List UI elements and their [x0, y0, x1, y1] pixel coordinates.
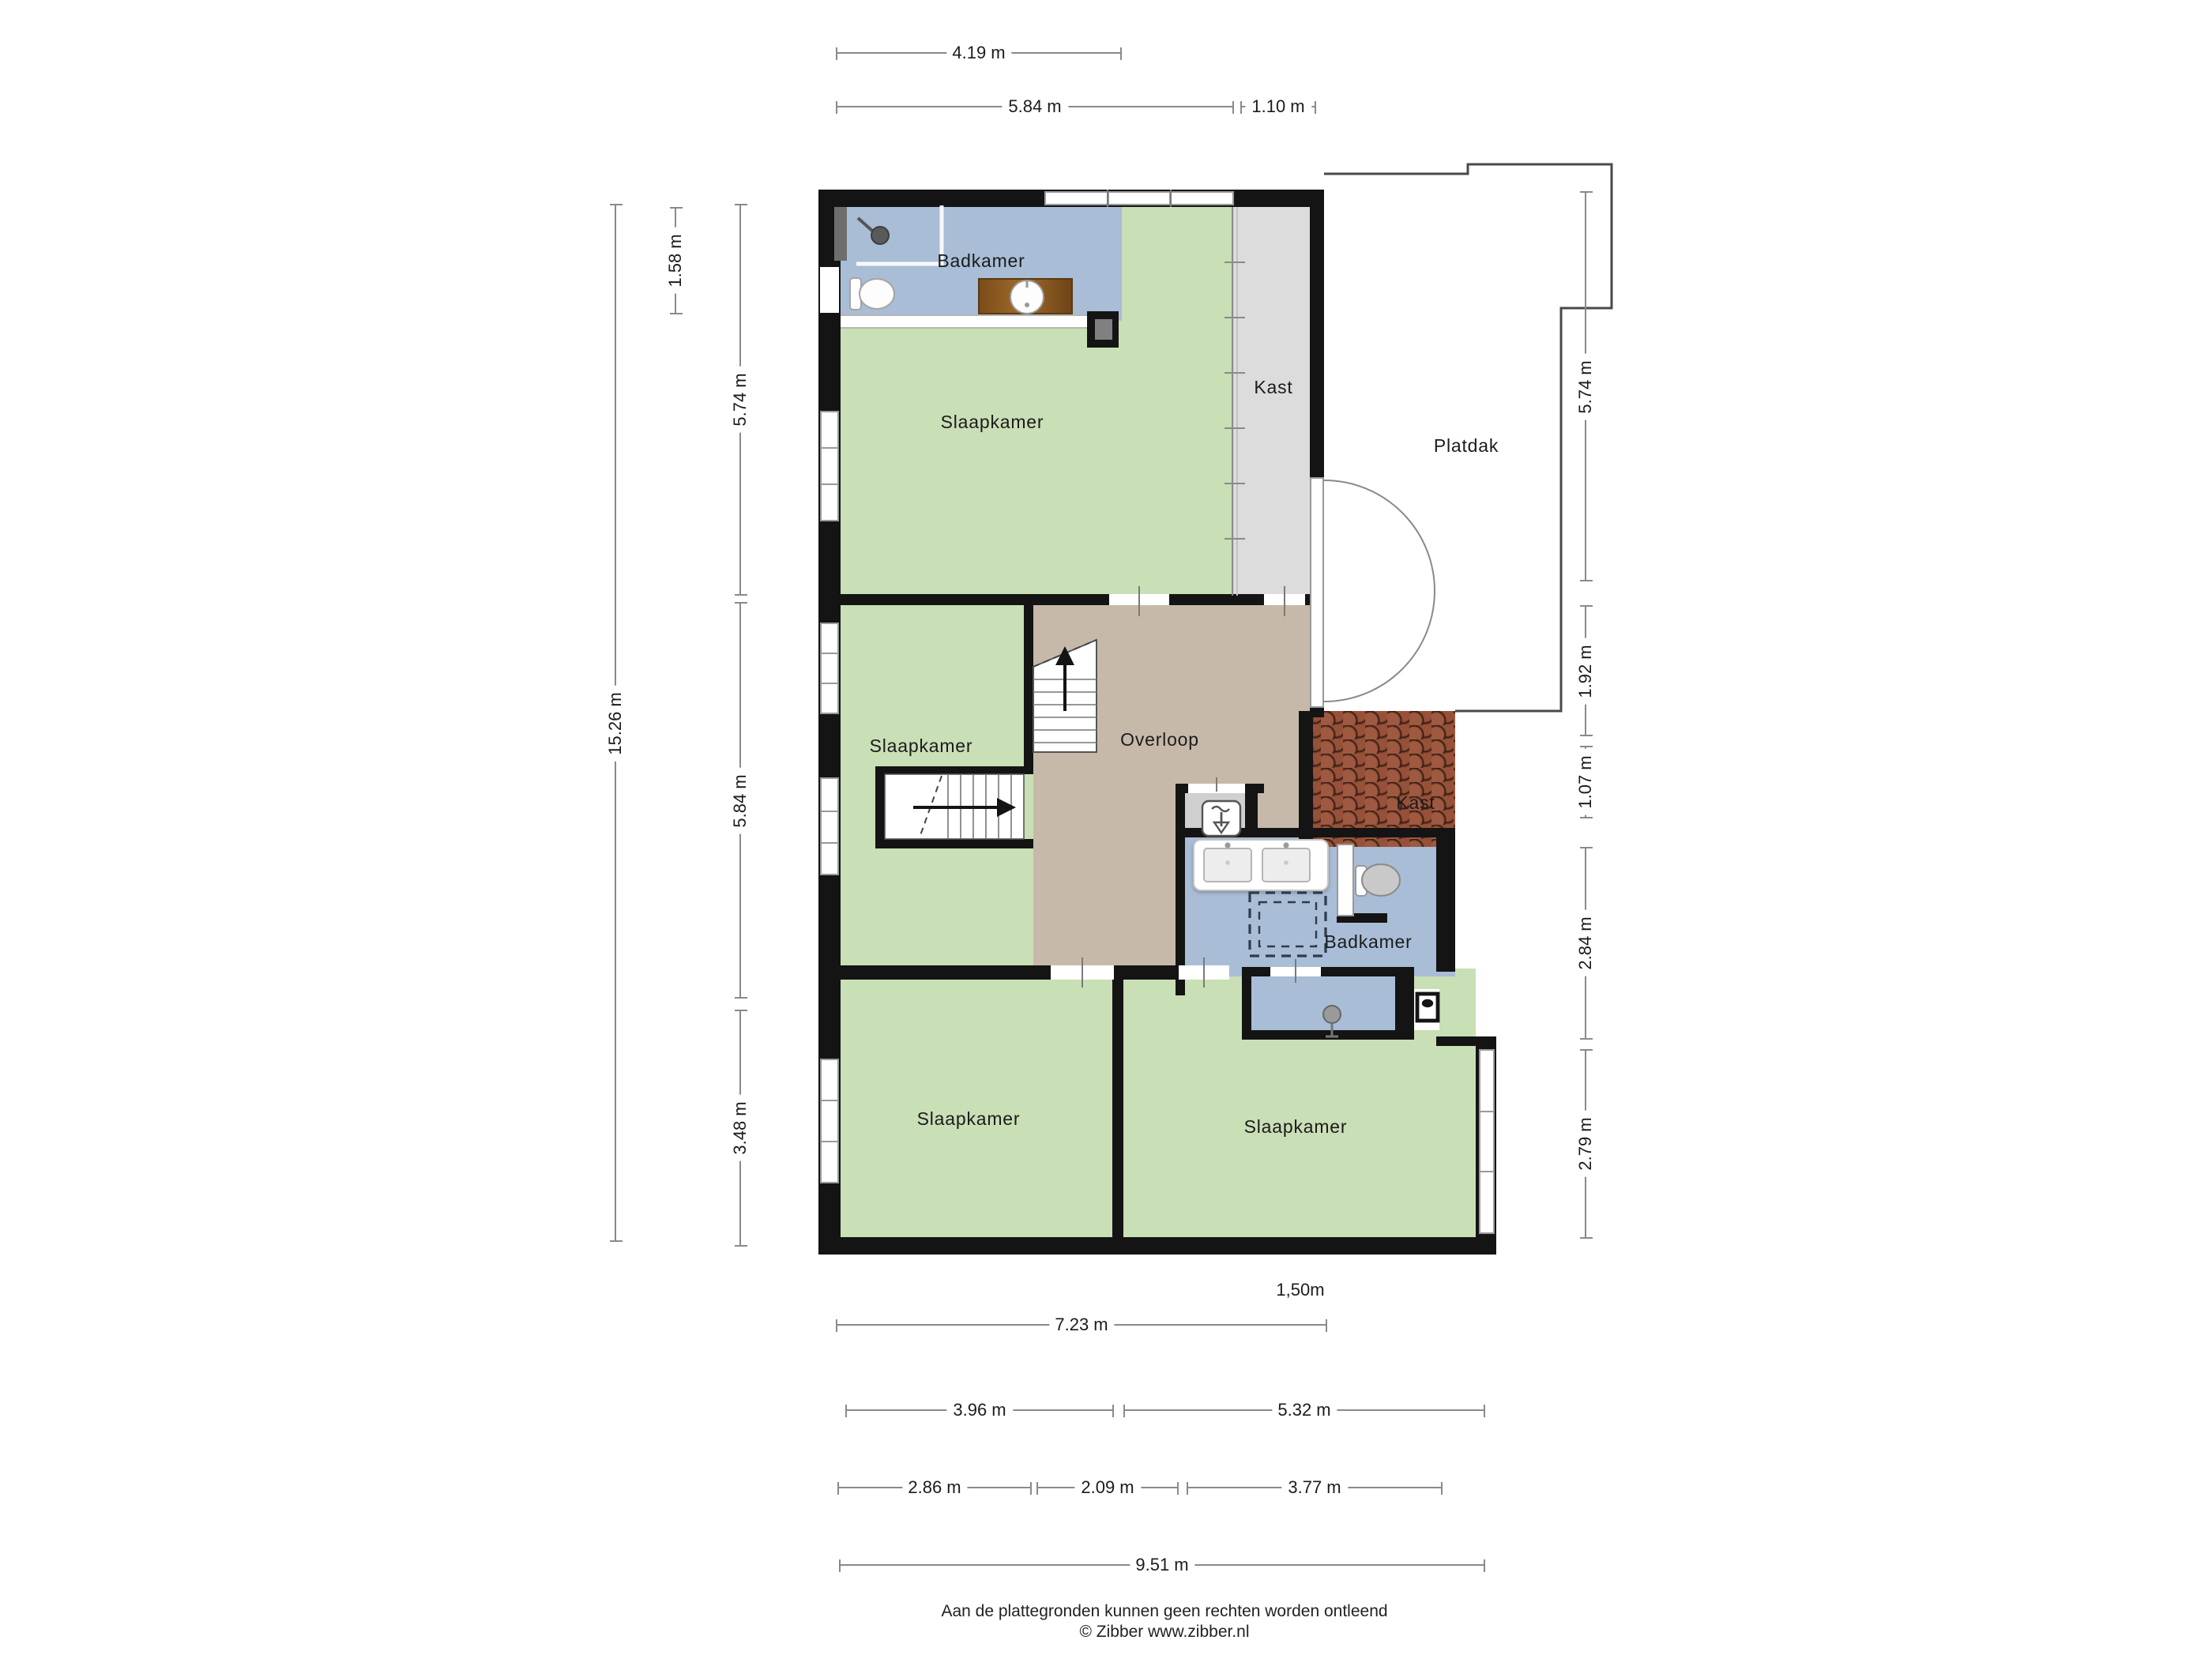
dim-bottom-2-09: 2.09 m	[1036, 1487, 1179, 1488]
room-label-slaapkamer-top: Slaapkamer	[941, 414, 1044, 433]
wall-badkamer-right	[1436, 828, 1455, 972]
room-label-badkamer-top: Badkamer	[937, 253, 1025, 272]
room-slaapkamer-mid-floor	[829, 602, 1033, 969]
disclaimer-text: Aan de plattegronden kunnen geen rechten…	[941, 1602, 1387, 1621]
door-gap-bedroom-bl	[1051, 965, 1114, 980]
dim-left-1-58: 1.58 m	[675, 207, 676, 314]
dim-right-2-84: 2.84 m	[1585, 847, 1586, 1040]
wall-tubroom-bottom	[1242, 1030, 1414, 1040]
room-kast-mid-roof-tiles	[1299, 711, 1455, 847]
window-left-4	[820, 1059, 839, 1183]
double-sink-counter	[1193, 839, 1329, 891]
wall-right-step	[1436, 1036, 1496, 1046]
door-gap-tech-closet	[1188, 784, 1245, 793]
room-slaapkamer-bl-floor	[829, 969, 1117, 1240]
vanity-top-bathroom	[978, 278, 1073, 314]
window-top	[1044, 191, 1234, 205]
wall-stair-left	[875, 766, 885, 848]
duct-panel	[834, 207, 847, 261]
wall-stair-top	[875, 766, 1033, 774]
french-door-frame	[1310, 477, 1324, 708]
door-gap-kast-zone	[1264, 594, 1305, 605]
dim-bottom-3-96: 3.96 m	[845, 1409, 1114, 1411]
wall-stair-bottom	[875, 839, 1033, 848]
dim-top-4-19: 4.19 m	[836, 52, 1122, 54]
wall-tubroom-left	[1242, 967, 1251, 1040]
bath-partition-band	[836, 314, 1089, 329]
window-left-3	[820, 777, 839, 875]
dim-right-2-79: 2.79 m	[1585, 1049, 1586, 1239]
room-label-slaapkamer-bl: Slaapkamer	[917, 1111, 1021, 1130]
copyright-text: © Zibber www.zibber.nl	[1079, 1623, 1249, 1642]
room-label-overloop: Overloop	[1120, 732, 1199, 750]
window-left-1	[820, 411, 839, 521]
door-swing-icon	[1324, 480, 1435, 702]
wall-tubroom-right	[1395, 967, 1414, 1040]
chimney-flue	[1095, 319, 1112, 340]
boiler-niche	[1414, 989, 1439, 1030]
door-gap-bedroom-br	[1179, 965, 1229, 980]
door-gap-tubroom	[1270, 967, 1321, 976]
room-label-kast-top: Kast	[1254, 379, 1292, 398]
wall-kast-mid-left	[1299, 711, 1313, 847]
room-badkamer-tub-floor	[1242, 967, 1414, 1040]
dim-top-5-84: 5.84 m	[836, 106, 1234, 107]
dim-left-15-26: 15.26 m	[615, 204, 616, 1242]
wall-interior-bottom	[818, 965, 1185, 980]
wall-badkamer-left	[1176, 784, 1185, 995]
wall-midbedroom-right	[1024, 594, 1033, 774]
dim-top-1-10: 1.10 m	[1240, 106, 1316, 107]
dim-left-3-48: 3.48 m	[739, 1010, 741, 1247]
room-label-slaapkamer-br: Slaapkamer	[1244, 1119, 1348, 1138]
dim-left-5-84: 5.84 m	[739, 602, 741, 999]
wall-interior-top	[818, 594, 1324, 605]
dim-right-1-92: 1.92 m	[1585, 605, 1586, 736]
wall-outer-right-top	[1310, 190, 1324, 477]
dim-bottom-5-32: 5.32 m	[1123, 1409, 1485, 1411]
room-label-platdak: Platdak	[1434, 438, 1499, 457]
dim-bottom-2-86: 2.86 m	[837, 1487, 1032, 1488]
window-right	[1479, 1049, 1495, 1234]
wall-bedroom-divider	[1112, 980, 1123, 1237]
wall-badkamer-top	[1176, 828, 1455, 837]
dim-bottom-9-51: 9.51 m	[839, 1564, 1485, 1566]
door-gap-top-bedroom	[1109, 594, 1169, 605]
room-label-kast-mid: Kast	[1396, 795, 1435, 814]
door-gap-bathroom-top	[820, 267, 839, 313]
dim-bottom-7-23: 7.23 m	[836, 1324, 1327, 1326]
room-label-badkamer-mid: Badkamer	[1324, 934, 1412, 953]
window-left-2	[820, 623, 839, 714]
room-label-slaapkamer-mid: Slaapkamer	[870, 738, 973, 757]
dim-bottom-3-77: 3.77 m	[1187, 1487, 1443, 1488]
floor-plan: Badkamer Slaapkamer Kast Platdak Slaapka…	[0, 0, 2212, 1659]
wall-outer-bottom	[818, 1237, 1496, 1255]
dim-right-1-07: 1.07 m	[1585, 746, 1586, 818]
dim-right-5-74: 5.74 m	[1585, 191, 1586, 581]
dim-inset-1-50: 1,50m	[1276, 1281, 1324, 1300]
door-leaf	[1337, 844, 1354, 916]
dim-left-5-74: 5.74 m	[739, 204, 741, 596]
room-kast-top-floor	[1234, 204, 1318, 599]
